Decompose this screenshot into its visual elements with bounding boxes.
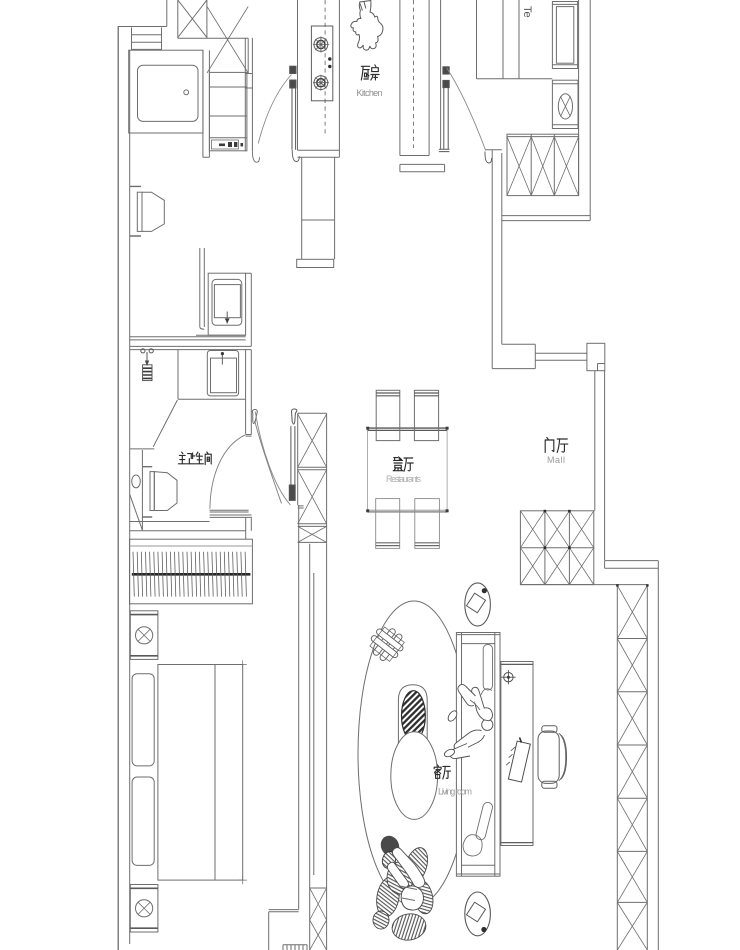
svg-text:Mall: Mall bbox=[547, 455, 565, 465]
svg-text:Te: Te bbox=[521, 6, 533, 18]
svg-text:Living room: Living room bbox=[438, 787, 472, 797]
svg-text:Restaurants: Restaurants bbox=[386, 474, 422, 484]
svg-text:Kitchen: Kitchen bbox=[357, 88, 383, 98]
